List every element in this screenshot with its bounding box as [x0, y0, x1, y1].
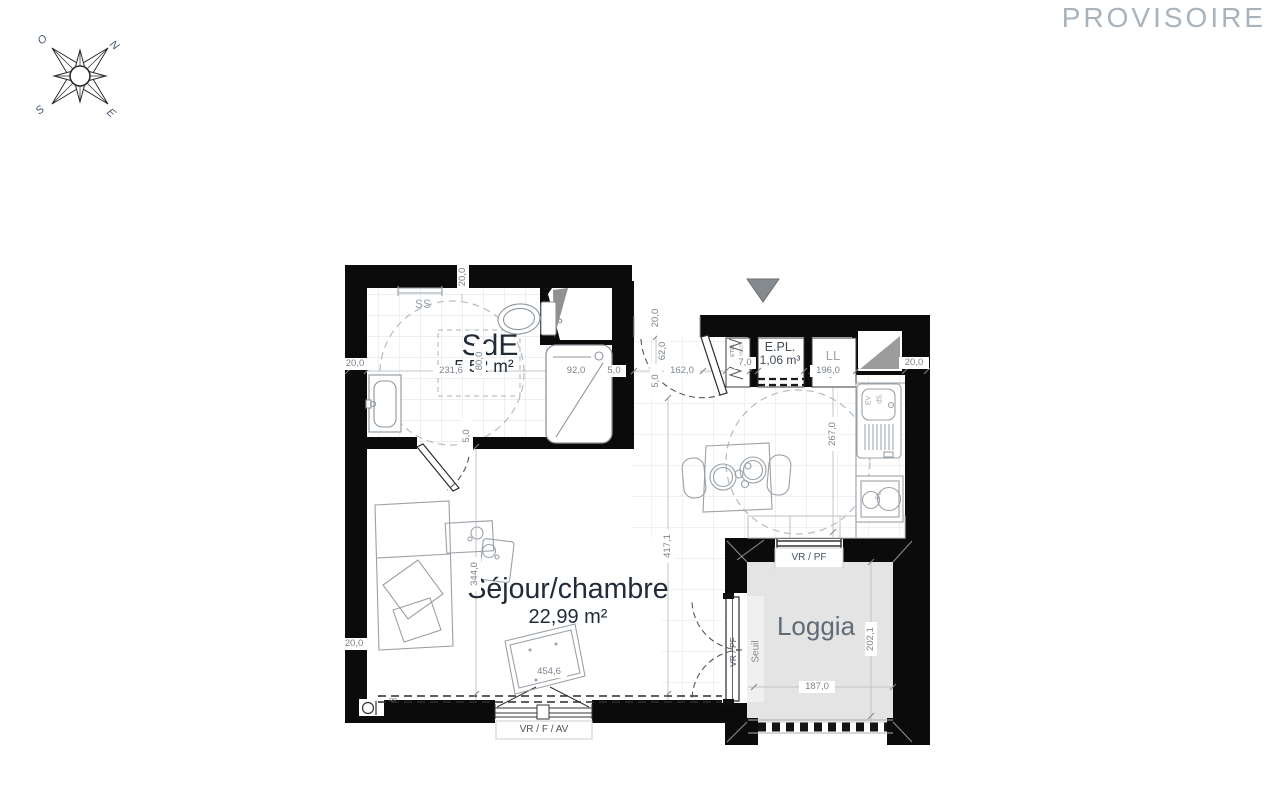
- dim-sde-door-gap: 5,0: [461, 419, 473, 453]
- floorplan-drawing: [0, 0, 1272, 800]
- dim-wall-left-upper: 20,0: [340, 358, 370, 370]
- sink-label-2: dS.: [877, 382, 884, 416]
- dim-loggia-depth: 202,1: [865, 622, 877, 656]
- dim-entry-wall: 20,0: [650, 301, 662, 335]
- radiator-label: RP: [385, 698, 401, 704]
- dim-entry-door: 62,0: [657, 334, 669, 368]
- washbasin: [366, 375, 401, 432]
- dim-loggia-width: 187,0: [799, 681, 835, 693]
- dim-wall-right: 20,0: [899, 357, 929, 369]
- rug: [505, 624, 585, 694]
- sink-label: EV: [866, 384, 873, 418]
- dim-entry-width: 162,0: [664, 365, 700, 377]
- washing-machine-label: LL: [818, 348, 848, 363]
- duct-shaft-kitchen: [858, 331, 902, 371]
- floorplan-page: PROVISOIRE O N S E: [0, 0, 1272, 800]
- cooktop-label: PL.: [876, 478, 883, 512]
- loggia-room-label: Loggia: [766, 613, 866, 640]
- dim-sde-width: 231,6: [433, 365, 469, 377]
- dim-rug-width: 454,6: [531, 666, 567, 678]
- dim-sde-gap: 5,0: [602, 365, 626, 377]
- towel-rail-label: SS: [408, 297, 438, 311]
- shower: [546, 345, 612, 443]
- dim-entry-gap: 5,0: [650, 364, 662, 398]
- dim-etel-width: 7,0: [734, 357, 756, 369]
- dim-kitchen-width: 196,0: [810, 365, 846, 377]
- threshold-label: Seuil: [751, 632, 762, 672]
- dim-shower-width: 92,0: [560, 365, 592, 377]
- dim-kitchen-depth: 267,0: [827, 417, 839, 451]
- loggia-window-label: VR / PF: [777, 552, 841, 564]
- loggia-door-label: VR / PF: [727, 632, 739, 672]
- dim-wall-left-lower: 20,0: [339, 638, 369, 650]
- dim-wall-top: 20,0: [457, 260, 469, 294]
- dim-sejour-left-height: 344,0: [469, 557, 481, 591]
- entrance-arrow-icon: [747, 279, 779, 302]
- sejour-area-label: 22,99 m²: [498, 607, 638, 628]
- dim-sde-clear: 80,0: [474, 344, 486, 378]
- dim-sejour-height: 417,1: [662, 529, 674, 563]
- main-window-label: VR / F / AV: [499, 724, 589, 736]
- epl-volume-label: 1,06 m³: [748, 354, 812, 367]
